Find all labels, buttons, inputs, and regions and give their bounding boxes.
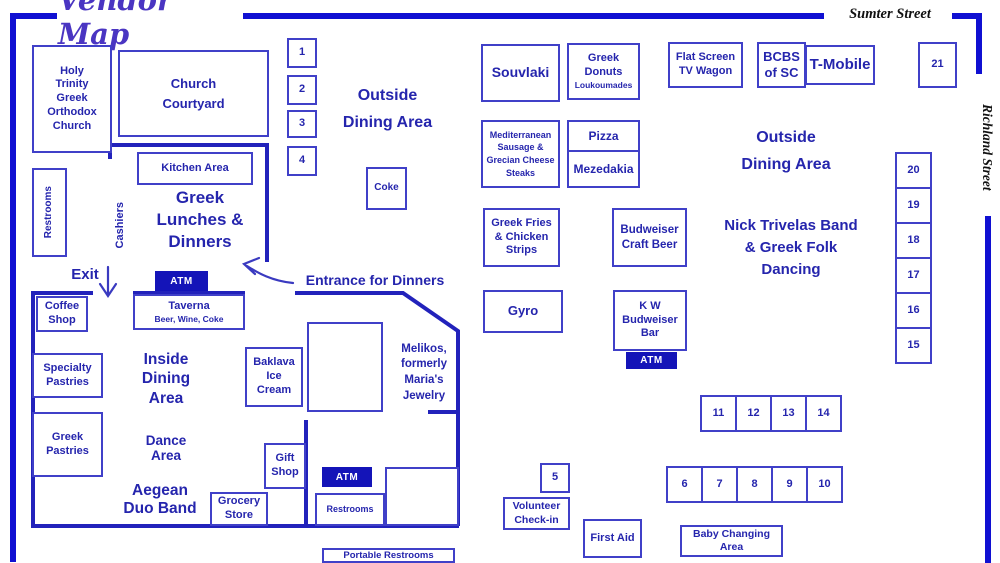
stall-17-box: 17 <box>895 257 932 294</box>
taverna-box: Taverna Beer, Wine, Coke <box>133 294 245 330</box>
tmobile-box: T-Mobile <box>805 45 875 85</box>
greek-lunches-dinners-label: Greek Lunches & Dinners <box>140 184 260 256</box>
church-courtyard-box: Church Courtyard <box>118 50 269 137</box>
stall-16-box: 16 <box>895 292 932 329</box>
nick-trivelas-band-label: Nick Trivelas Band & Greek Folk Dancing <box>705 210 877 286</box>
stall-5-box: 5 <box>540 463 570 493</box>
page-title: Vendor Map <box>58 0 243 38</box>
kw-budweiser-bar-box: K W Budweiser Bar <box>613 290 687 351</box>
pizza-box: Pizza <box>567 120 640 152</box>
melikos-jewelry-label: Melikos, formerly Maria's Jewelry <box>388 339 460 407</box>
flat-screen-tv-wagon-box: Flat Screen TV Wagon <box>668 42 743 88</box>
restrooms-lower-box: Restrooms <box>315 493 385 526</box>
storage-building-box <box>385 467 459 526</box>
stall-11-box: 11 <box>700 395 737 432</box>
dance-area-label: Dance Area <box>135 430 197 466</box>
stall-7-box: 7 <box>701 466 738 503</box>
cashiers-label: Cashiers <box>108 196 132 254</box>
stall-3-box: 3 <box>287 110 317 138</box>
grocery-store-box: Grocery Store <box>210 492 268 526</box>
bcbs-box: BCBS of SC <box>757 42 806 88</box>
stall-6-box: 6 <box>666 466 703 503</box>
stall-2-box: 2 <box>287 75 317 105</box>
stall-18-box: 18 <box>895 222 932 259</box>
gyro-box: Gyro <box>483 290 563 333</box>
coke-box: Coke <box>366 167 407 210</box>
greek-fries-box: Greek Fries & Chicken Strips <box>483 208 560 267</box>
stall-12-box: 12 <box>735 395 772 432</box>
stall-15-box: 15 <box>895 327 932 364</box>
restrooms-left-box: Restrooms <box>32 168 67 257</box>
loukoumades-label: Loukoumades <box>575 80 633 91</box>
stall-13-box: 13 <box>770 395 807 432</box>
entrance-arrow <box>244 258 293 283</box>
atm-lower: ATM <box>322 467 372 487</box>
gift-shop-box: Gift Shop <box>264 443 306 489</box>
aegean-duo-band-label: Aegean Duo Band <box>108 480 212 520</box>
taverna-sub-label: Beer, Wine, Coke <box>155 314 224 325</box>
souvlaki-box: Souvlaki <box>481 44 560 102</box>
stall-20-box: 20 <box>895 152 932 189</box>
specialty-pastries-box: Specialty Pastries <box>32 353 103 398</box>
holy-trinity-church-box: Holy Trinity Greek Orthodox Church <box>32 45 112 153</box>
first-aid-box: First Aid <box>583 519 642 558</box>
outside-dining-area-right-label: Outside Dining Area <box>725 124 847 178</box>
taverna-label: Taverna <box>168 300 209 314</box>
inside-dining-area-label: Inside Dining Area <box>133 348 199 410</box>
greek-donuts-box: Greek Donuts Loukoumades <box>567 43 640 100</box>
mediterranean-sausage-box: Mediterranean Sausage & Grecian Cheese S… <box>481 120 560 188</box>
baklava-ice-cream-box: Baklava Ice Cream <box>245 347 303 407</box>
street-label-richland: Richland Street <box>974 76 1000 218</box>
greek-pastries-box: Greek Pastries <box>32 412 103 477</box>
stall-14-box: 14 <box>805 395 842 432</box>
outside-dining-area-left-label: Outside Dining Area <box>330 83 445 135</box>
stall-10-box: 10 <box>806 466 843 503</box>
exit-label: Exit <box>64 262 106 286</box>
stall-4-box: 4 <box>287 146 317 176</box>
stall-9-box: 9 <box>771 466 808 503</box>
kitchen-area-box: Kitchen Area <box>137 152 253 185</box>
stall-1-box: 1 <box>287 38 317 68</box>
coffee-shop-box: Coffee Shop <box>36 296 88 332</box>
volunteer-checkin-box: Volunteer Check-in <box>503 497 570 530</box>
mezedakia-box: Mezedakia <box>567 150 640 188</box>
entrance-for-dinners-label: Entrance for Dinners <box>291 270 459 290</box>
restrooms-left-label: Restrooms <box>43 186 56 238</box>
street-label-sumter: Sumter Street <box>830 2 950 26</box>
portable-restrooms-box: Portable Restrooms <box>322 548 455 563</box>
baby-changing-area-box: Baby Changing Area <box>680 525 783 557</box>
atm-taverna: ATM <box>155 271 208 291</box>
atm-kw-bar: ATM <box>626 352 677 369</box>
budweiser-craft-beer-box: Budweiser Craft Beer <box>612 208 687 267</box>
jewelry-building-box <box>307 322 383 412</box>
stall-19-box: 19 <box>895 187 932 224</box>
vendor-map: Vendor Map Sumter Street Richland Street… <box>0 0 1000 563</box>
stall-8-box: 8 <box>736 466 773 503</box>
stall-21-box: 21 <box>918 42 957 88</box>
greek-donuts-label: Greek Donuts <box>585 52 623 80</box>
